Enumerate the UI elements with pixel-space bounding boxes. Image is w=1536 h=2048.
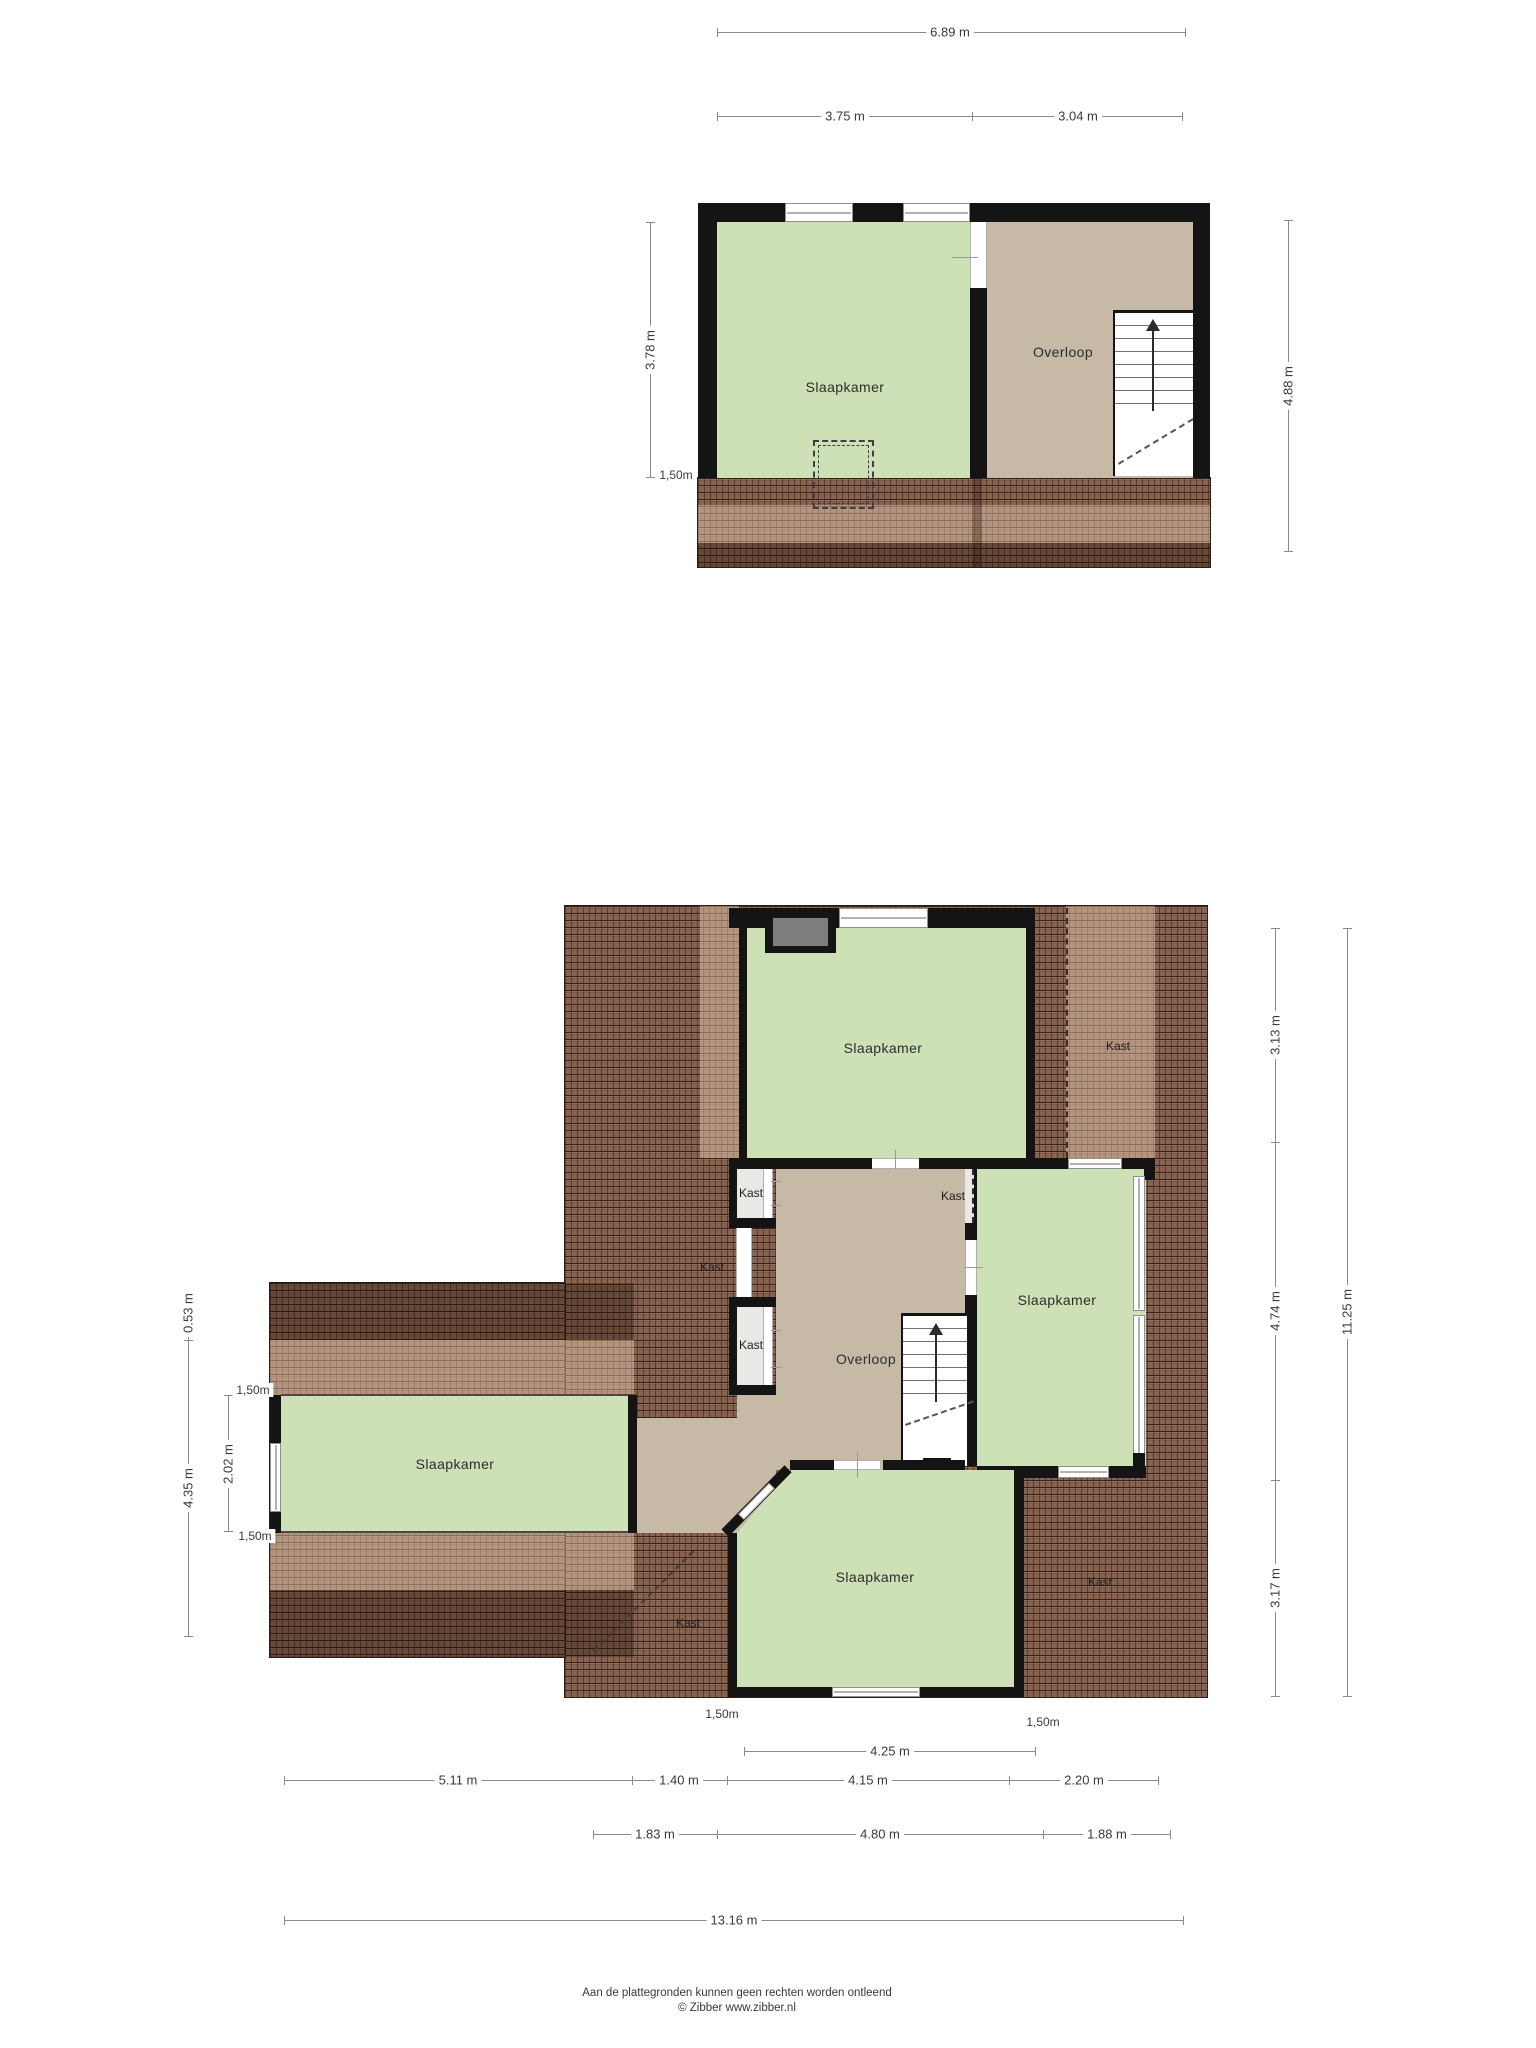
dim-label: 4.25 m <box>866 1744 914 1759</box>
closet-door <box>763 1307 773 1385</box>
disclaimer: Aan de plattegronden kunnen geen rechten… <box>287 1986 1187 2016</box>
wall <box>728 1687 832 1697</box>
wall <box>920 1687 1024 1697</box>
dim-label: 4.15 m <box>844 1773 892 1788</box>
window <box>1133 1176 1145 1311</box>
dim-tick <box>632 1776 633 1785</box>
window <box>1133 1315 1145 1455</box>
dim-tick <box>717 1830 718 1839</box>
dim-label: 3.13 m <box>1268 1011 1283 1059</box>
staircase <box>901 1313 967 1466</box>
closet-label: Kast <box>739 1186 763 1200</box>
dim-label: 1.83 m <box>631 1827 679 1842</box>
wall <box>977 1158 1155 1169</box>
stair-cut-line <box>905 1401 974 1426</box>
roof-tiles <box>698 478 1210 567</box>
door-tick <box>771 1181 781 1182</box>
copyright-line: © Zibber www.zibber.nl <box>287 2001 1187 2016</box>
wall <box>1026 908 1035 1169</box>
dim-label: 1.40 m <box>655 1773 703 1788</box>
dim-tick <box>1009 1776 1010 1785</box>
dim-label: 3.04 m <box>1054 109 1102 124</box>
stairs-up-arrow-icon <box>935 1334 937 1402</box>
door-tick <box>771 1205 781 1206</box>
room-edge <box>281 1394 637 1396</box>
dim-tick <box>184 1340 193 1341</box>
disclaimer-line1: Aan de plattegronden kunnen geen rechten… <box>287 1986 1187 2001</box>
dim-tick <box>727 1776 728 1785</box>
closet-door <box>736 1228 752 1297</box>
window <box>785 203 853 222</box>
room-bedroom <box>977 1158 1146 1478</box>
dim-label: 1,50m <box>701 1707 742 1721</box>
door-opening <box>970 222 987 288</box>
closet-label: Kast <box>700 1260 724 1274</box>
room-label: Slaapkamer <box>416 1456 495 1472</box>
door-tick <box>952 257 978 258</box>
room-edge <box>281 1531 637 1533</box>
dim-label: 3.75 m <box>821 109 869 124</box>
dim-label: 4.80 m <box>856 1827 904 1842</box>
dim-line <box>284 1780 1159 1781</box>
dim-label: 13.16 m <box>707 1913 762 1928</box>
window <box>832 1687 920 1697</box>
wall <box>1193 203 1210 478</box>
dim-label: 1,50m <box>232 1383 273 1397</box>
stairs-up-arrow-icon <box>929 1323 943 1335</box>
closet-door <box>763 1169 773 1218</box>
dim-label: 4.88 m <box>1281 362 1296 410</box>
closet-label: Kast <box>676 1616 700 1630</box>
dim-tick <box>1043 1830 1044 1839</box>
roof-window-outline <box>813 440 874 509</box>
dim-label: 2.02 m <box>221 1440 236 1488</box>
wall <box>628 1395 637 1533</box>
dim-label: 1,50m <box>655 468 696 482</box>
wall <box>698 203 717 478</box>
closet-dash-line <box>972 1169 974 1223</box>
wall <box>729 1385 776 1395</box>
stair-cut-line <box>1118 418 1194 465</box>
room-label: Slaapkamer <box>806 379 885 395</box>
window <box>903 203 970 222</box>
dim-label: 6.89 m <box>926 25 974 40</box>
door-tick <box>857 1452 858 1478</box>
dim-label: 1.88 m <box>1083 1827 1131 1842</box>
dim-label: 4.35 m <box>181 1464 196 1512</box>
wall <box>729 1158 872 1169</box>
wall <box>1014 1470 1024 1697</box>
door-tick <box>771 1367 781 1368</box>
wall <box>1144 1158 1155 1180</box>
wall <box>728 1533 737 1697</box>
dim-label: 3.78 m <box>643 326 658 374</box>
door-tick <box>771 1330 781 1331</box>
dim-label: 11.25 m <box>1340 1285 1355 1339</box>
dim-label: 5.11 m <box>435 1773 482 1788</box>
dim-label: 1,50m <box>234 1529 275 1543</box>
wall <box>926 1158 977 1169</box>
staircase <box>1113 310 1193 476</box>
dim-line <box>717 116 1183 117</box>
wall <box>790 1460 834 1470</box>
closet-label: Kast <box>1106 1039 1130 1053</box>
room-label: Slaapkamer <box>844 1040 923 1056</box>
room-label: Slaapkamer <box>836 1569 915 1585</box>
closet-label: Kast <box>941 1189 965 1203</box>
room-label: Overloop <box>1033 344 1093 360</box>
window <box>839 908 928 928</box>
closet-label: Kast <box>739 1338 763 1352</box>
room-label: Overloop <box>836 1351 896 1367</box>
dim-tick <box>1271 1142 1280 1143</box>
wall <box>883 1460 965 1470</box>
wall-divider <box>970 288 987 478</box>
wall <box>270 1395 281 1443</box>
stairs-up-arrow-icon <box>1152 329 1154 411</box>
closet-dash-line <box>1066 908 1068 1158</box>
stairs-up-arrow-icon <box>1146 319 1160 331</box>
chimney-flue <box>773 918 828 946</box>
room-label: Slaapkamer <box>1018 1292 1097 1308</box>
window <box>1058 1466 1109 1478</box>
room-landing <box>637 1418 737 1533</box>
dim-label: 0.53 m <box>181 1289 196 1337</box>
floorplan-page: 6.89 m 3.75 m 3.04 m 3.78 m 1,50m 4.88 m… <box>0 0 1536 2048</box>
dim-label: 2.20 m <box>1060 1773 1108 1788</box>
closet-label: Kast <box>1088 1575 1112 1589</box>
dim-label: 3.17 m <box>1268 1564 1283 1612</box>
dim-label: 1,50m <box>1022 1715 1063 1729</box>
wall <box>729 1218 776 1228</box>
wall <box>739 908 747 1158</box>
window <box>1068 1158 1122 1169</box>
wall <box>1109 1466 1146 1478</box>
dim-tick <box>1271 1480 1280 1481</box>
dim-tick <box>972 112 973 121</box>
dim-label: 4.74 m <box>1268 1287 1283 1335</box>
window <box>270 1443 281 1512</box>
wall <box>729 1297 737 1393</box>
